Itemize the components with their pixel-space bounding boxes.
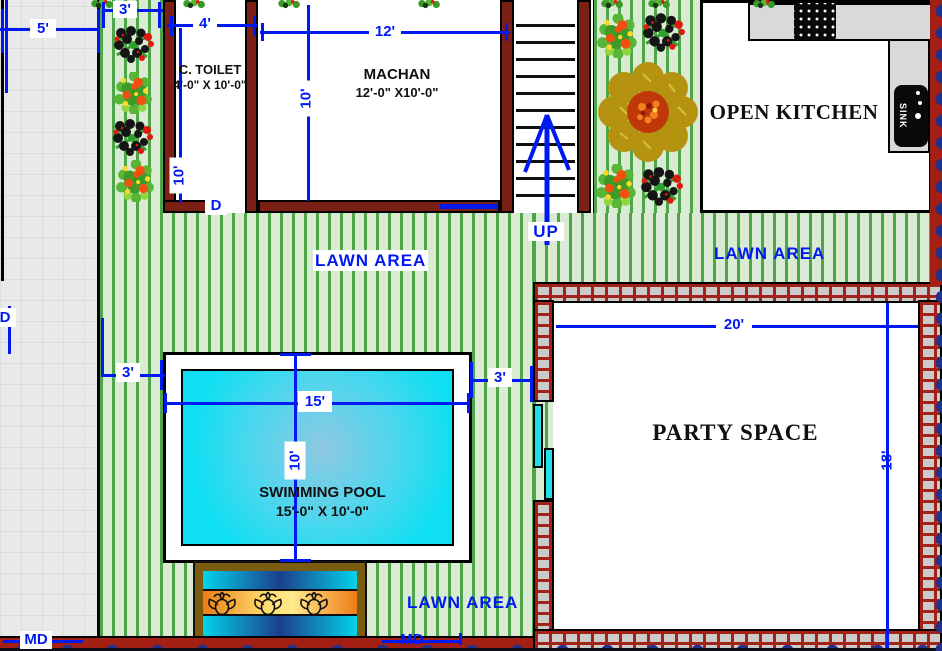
grill-icon bbox=[794, 3, 836, 40]
dim-machan-width: 12' bbox=[369, 22, 401, 41]
open-kitchen-label: OPEN KITCHEN bbox=[698, 99, 890, 125]
dim-tick bbox=[280, 353, 311, 356]
dim-tick bbox=[170, 16, 173, 36]
berry-bush-icon bbox=[640, 12, 686, 54]
dim-line-left-edge bbox=[5, 0, 8, 93]
toilet-name: C. TOILET bbox=[169, 62, 251, 78]
dim-tick bbox=[158, 2, 161, 28]
stairs-up-label: UP bbox=[528, 222, 564, 241]
dim-tick bbox=[97, 9, 100, 53]
berry-bush-icon bbox=[638, 166, 684, 208]
dim-tick bbox=[102, 2, 105, 28]
leaf-top-icon bbox=[645, 0, 675, 9]
flower-bush-icon bbox=[596, 14, 640, 58]
left-door-label: D bbox=[0, 308, 16, 327]
lotus-icon bbox=[296, 590, 332, 616]
toilet-door-label: D bbox=[205, 197, 227, 215]
sink-icon: SINK bbox=[894, 85, 928, 147]
leaf-top-icon bbox=[750, 0, 780, 9]
dim-tick bbox=[280, 559, 311, 562]
machan-window bbox=[440, 204, 498, 209]
sink-label: SINK bbox=[898, 103, 908, 129]
party-space-room bbox=[550, 298, 922, 633]
leaf-top-icon bbox=[275, 0, 305, 9]
lawn-area-label-right: LAWN AREA bbox=[712, 243, 827, 264]
flower-bush-icon bbox=[113, 72, 155, 114]
berry-bush-icon bbox=[110, 118, 154, 158]
party-wall-left-upper bbox=[533, 300, 554, 402]
toilet-size: 4'-0" X 10'-0" bbox=[169, 78, 251, 93]
toilet-label: C. TOILET 4'-0" X 10'-0" bbox=[169, 62, 251, 93]
dim-tick bbox=[1, 9, 4, 53]
leaf-top-icon bbox=[598, 0, 628, 9]
dim-tick bbox=[261, 23, 264, 41]
flower-bush-icon bbox=[115, 160, 157, 202]
party-sliding-door-panel-1 bbox=[533, 404, 543, 468]
party-sliding-door-panel-2 bbox=[544, 448, 554, 500]
pool-name: SWIMMING POOL bbox=[185, 484, 460, 503]
dim-pool-depth: 10' bbox=[285, 442, 306, 480]
berry-bush-icon bbox=[111, 25, 155, 65]
dim-tick bbox=[505, 23, 508, 41]
dim-pool-offset-right: 3' bbox=[488, 368, 512, 387]
dim-party-width: 20' bbox=[716, 314, 752, 335]
lotus-icon bbox=[250, 590, 286, 616]
dim-toilet-depth: 10' bbox=[170, 158, 189, 194]
main-door-label-right: MD bbox=[396, 631, 428, 649]
dim-tick bbox=[160, 360, 163, 390]
lawn-area-label-bottom: LAWN AREA bbox=[405, 592, 520, 613]
lawn-area-label-top: LAWN AREA bbox=[313, 250, 428, 271]
dim-pool-offset-left: 3' bbox=[116, 363, 140, 382]
wall-toilet-bottom bbox=[163, 200, 211, 213]
dim-walkway: 5' bbox=[30, 19, 56, 38]
leaf-top-icon bbox=[415, 0, 445, 9]
flower-bush-icon bbox=[595, 164, 639, 208]
pool-label: SWIMMING POOL 15'-0" X 10'-0" bbox=[185, 484, 460, 520]
party-wall-top bbox=[533, 282, 942, 303]
big-tree-icon bbox=[593, 57, 703, 167]
dim-tick bbox=[164, 393, 167, 413]
main-door-label-left: MD bbox=[20, 631, 52, 649]
dim-machan-depth: 10' bbox=[297, 81, 316, 117]
wall-toilet-machan bbox=[245, 0, 258, 213]
boundary-scallops-right bbox=[932, 0, 942, 651]
dim-tick bbox=[101, 318, 104, 377]
dim-toilet-width: 4' bbox=[193, 15, 217, 33]
dim-tick bbox=[459, 633, 462, 645]
dim-planter: 3' bbox=[113, 1, 137, 18]
dim-tick bbox=[467, 393, 470, 413]
floor-plan-canvas: UP SINK OPEN KITCHEN PARTY SPACE SWIMMIN… bbox=[0, 0, 942, 651]
leaf-top-icon bbox=[180, 0, 210, 9]
pool-size: 15'-0" X 10'-0" bbox=[185, 503, 460, 521]
dim-pool-length: 15' bbox=[298, 391, 332, 412]
dim-tick bbox=[470, 362, 473, 398]
lotus-icon bbox=[204, 590, 240, 616]
party-space-label: PARTY SPACE bbox=[553, 419, 918, 448]
dim-tick bbox=[530, 366, 533, 402]
dim-party-depth: 18' bbox=[877, 442, 898, 480]
dim-tick bbox=[253, 16, 256, 36]
party-wall-left-lower bbox=[533, 500, 554, 650]
